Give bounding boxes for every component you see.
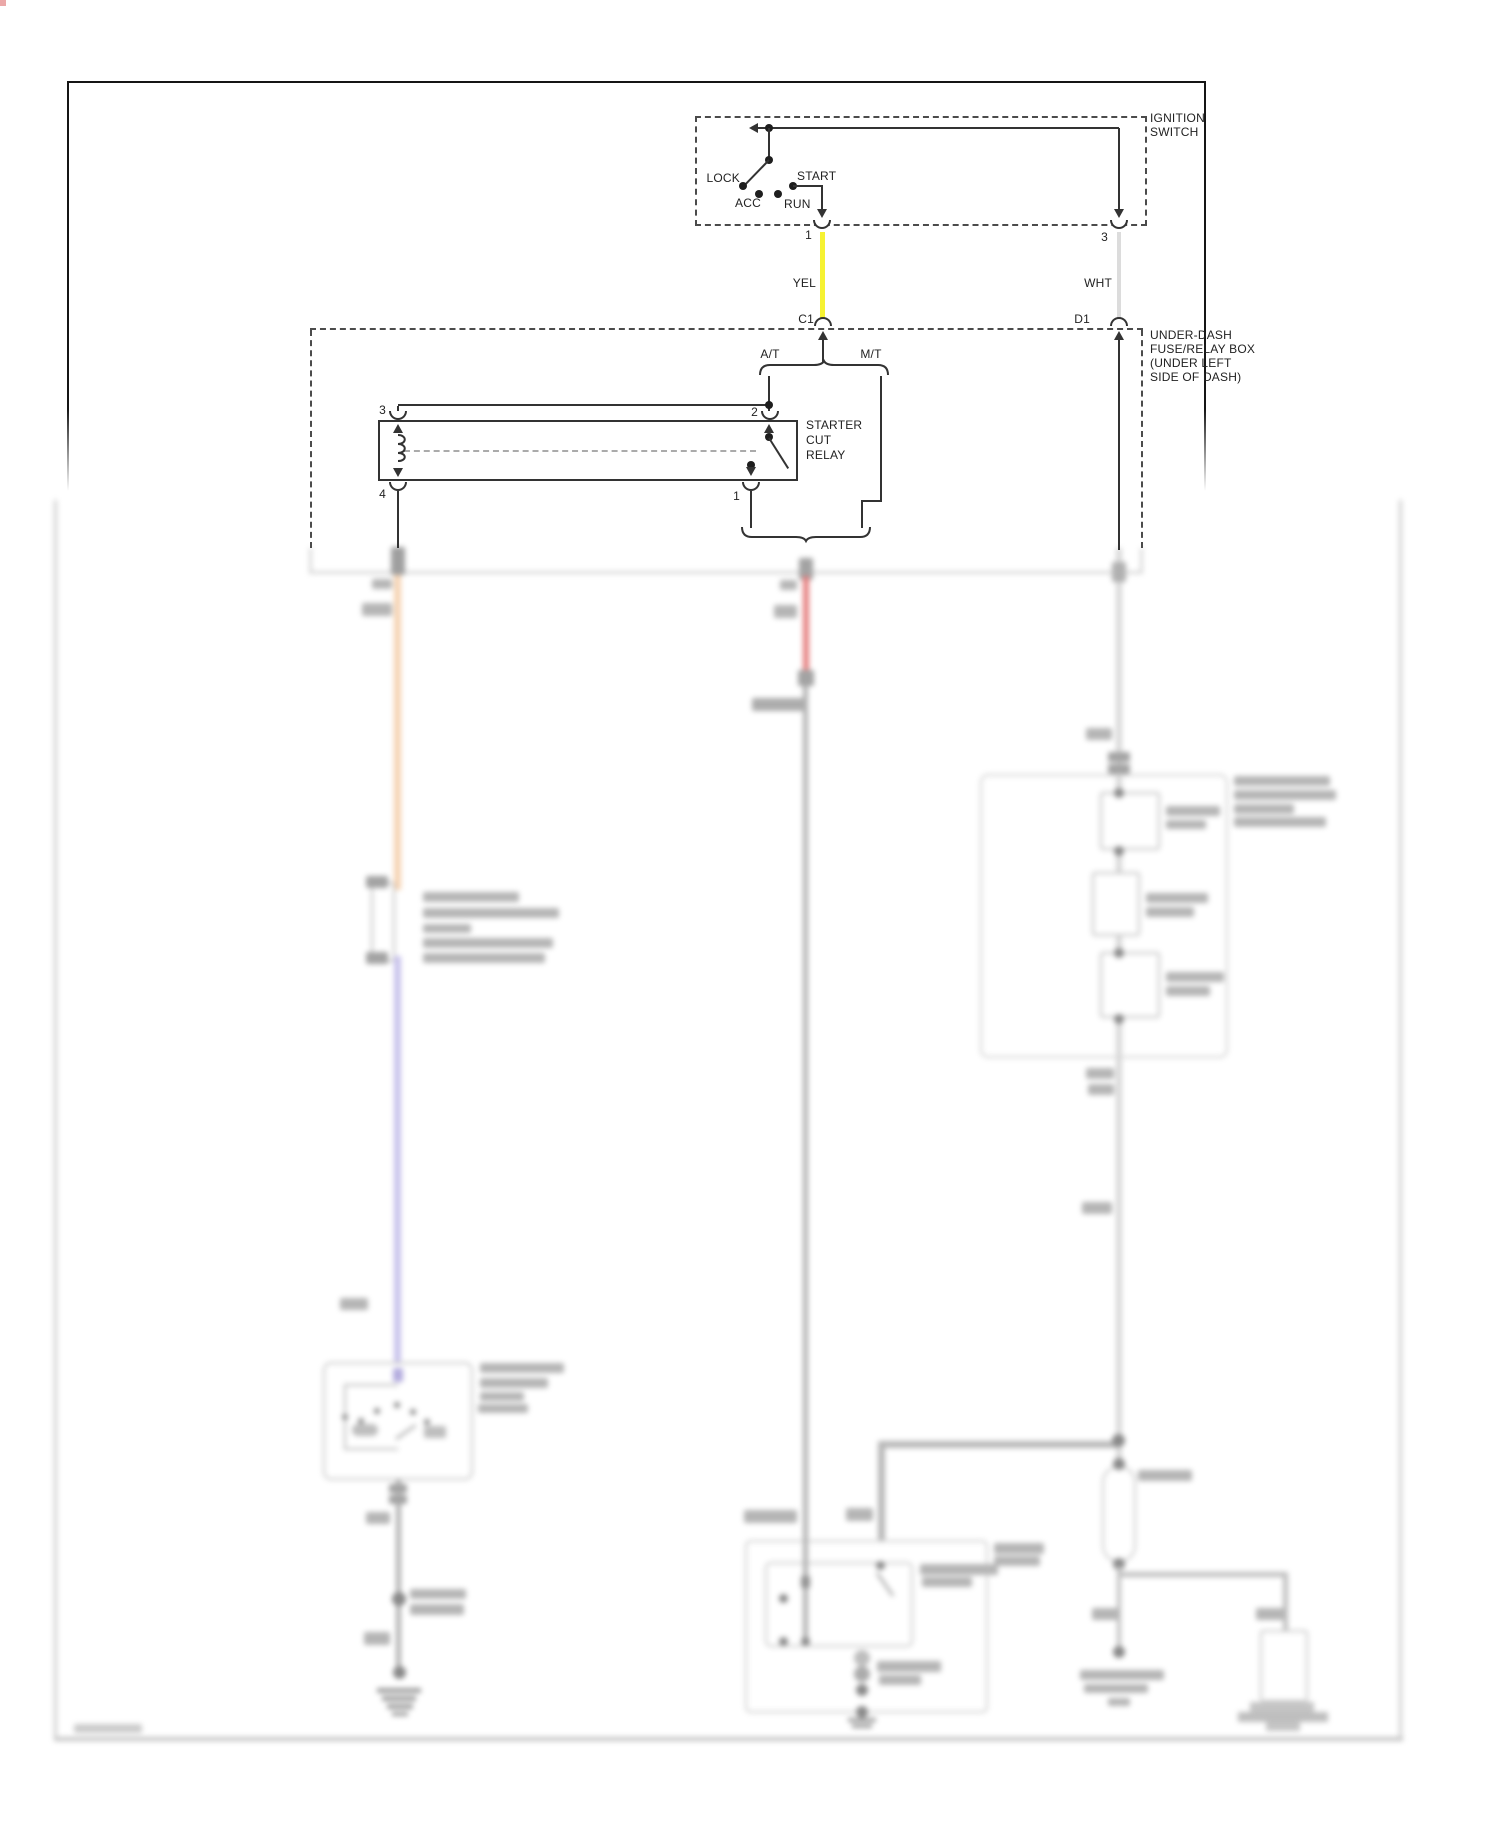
blurred-frame-left xyxy=(54,500,57,1740)
contact-dot xyxy=(856,1706,868,1718)
label-smudge xyxy=(1086,728,1112,740)
arrow-up-icon xyxy=(818,331,828,340)
label-smudge xyxy=(1234,817,1326,827)
position-start-label: START xyxy=(797,169,836,183)
corner-artifact xyxy=(0,0,6,6)
fuse-element xyxy=(1100,952,1160,1018)
wiring-diagram-page: IGNITION SWITCH LOCK ACC RUN START 1 3 Y… xyxy=(0,0,1500,1828)
relay-pin3-number: 3 xyxy=(362,403,386,417)
ground-symbol xyxy=(848,1718,876,1722)
pin1-output-wire xyxy=(750,491,752,528)
pin-battery-number: 3 xyxy=(1084,230,1108,244)
motor-circle xyxy=(854,1666,870,1682)
diagram-id-smudge xyxy=(74,1724,142,1733)
connector-smudge xyxy=(1108,752,1130,762)
d1-entry-line xyxy=(1118,340,1120,550)
run-contact-dot xyxy=(774,190,782,198)
red-wire xyxy=(803,576,809,674)
arrow-down-icon xyxy=(746,467,756,476)
relay-link-dashed-line xyxy=(404,450,756,452)
pin-start-number: 1 xyxy=(788,228,812,242)
start-branch-line xyxy=(793,185,823,187)
label-smudge xyxy=(423,938,553,948)
battery-box xyxy=(1260,1630,1308,1702)
label-smudge xyxy=(774,605,797,618)
label-smudge xyxy=(1166,806,1220,816)
battery-cable-horizontal xyxy=(878,1441,1121,1448)
switch-contact-dot xyxy=(394,1402,400,1408)
ignition-switch-label-line1: IGNITION xyxy=(1150,111,1205,125)
ground-symbol xyxy=(382,1696,416,1701)
merge-brace xyxy=(741,527,871,542)
label-smudge xyxy=(1166,972,1224,982)
arrow-up-icon xyxy=(764,424,774,433)
junction-dot xyxy=(1113,1646,1125,1658)
label-smudge xyxy=(1080,1670,1164,1680)
label-smudge xyxy=(362,603,392,616)
label-smudge xyxy=(364,1632,390,1645)
yel-wire-label: YEL xyxy=(770,276,816,290)
ground-symbol xyxy=(387,1704,413,1709)
relay-label-line2: CUT xyxy=(806,433,831,447)
position-acc-label: ACC xyxy=(735,196,761,210)
battery-base xyxy=(1250,1702,1314,1712)
fuse-element xyxy=(1092,872,1140,936)
label-smudge xyxy=(1146,907,1194,917)
switch-contact-dot xyxy=(410,1409,416,1415)
white-wire-blurred xyxy=(1116,548,1122,1570)
contact-dot xyxy=(876,1561,885,1570)
connector-smudge xyxy=(1108,764,1130,774)
label-smudge xyxy=(780,580,797,590)
arrow-smudge xyxy=(393,1368,403,1382)
ground-symbol xyxy=(377,1688,421,1693)
connector-smudge xyxy=(389,1484,407,1493)
fusible-link-pill xyxy=(1102,1466,1136,1562)
label-smudge xyxy=(1146,893,1208,903)
label-smudge xyxy=(922,1577,972,1587)
mt-branch-drop xyxy=(880,376,882,502)
contact-dot xyxy=(801,1637,810,1646)
label-smudge xyxy=(423,953,545,963)
label-smudge xyxy=(920,1564,998,1575)
junction-dot xyxy=(1113,1458,1125,1470)
battery-base xyxy=(1266,1722,1300,1731)
label-smudge xyxy=(1234,776,1330,786)
pin3-drop xyxy=(1118,128,1120,211)
connector-smudge xyxy=(391,547,405,575)
relay-label-line1: STARTER xyxy=(806,418,862,432)
arrow-down-icon xyxy=(1114,209,1124,218)
mt-branch-drop2 xyxy=(861,502,863,528)
label-smudge xyxy=(994,1543,1044,1554)
underdash-label-line3: (UNDER LEFT xyxy=(1150,356,1232,370)
contact-dot xyxy=(1114,1014,1124,1024)
label-smudge xyxy=(480,1378,548,1388)
label-smudge xyxy=(1084,1684,1148,1693)
battery-branch-vertical xyxy=(1283,1572,1288,1634)
connector-smudge xyxy=(389,1495,407,1504)
relay-pin2-number: 2 xyxy=(734,405,758,419)
inline-connector-box xyxy=(371,882,395,962)
fuse-element xyxy=(1100,792,1160,850)
label-smudge xyxy=(877,1661,941,1672)
c1-entry-line xyxy=(822,340,824,362)
label-smudge xyxy=(480,1363,564,1373)
label-smudge xyxy=(1256,1608,1284,1620)
wht-wire-label: WHT xyxy=(1066,276,1112,290)
label-smudge xyxy=(340,1298,368,1310)
ignition-switch-box xyxy=(695,116,1147,226)
battery-branch-horizontal xyxy=(1118,1572,1288,1577)
ignition-switch-label-line2: SWITCH xyxy=(1150,125,1199,139)
mt-branch-jog xyxy=(861,500,882,502)
label-smudge xyxy=(1108,1698,1130,1706)
underdash-box-top xyxy=(310,328,1143,330)
motor-circle xyxy=(854,1650,870,1666)
connector-d1-label: D1 xyxy=(1044,312,1090,326)
label-smudge xyxy=(1166,820,1206,829)
relay-label-line3: RELAY xyxy=(806,448,845,462)
arrow-up-icon xyxy=(1114,331,1124,340)
switch-contact-dot xyxy=(374,1408,380,1414)
label-smudge xyxy=(1138,1470,1192,1481)
splice-smudge xyxy=(752,698,806,711)
underdash-bottom-edge-blur xyxy=(310,571,1143,574)
relay-feed-line xyxy=(398,404,770,406)
ground-symbol xyxy=(852,1724,872,1728)
arrow-smudge xyxy=(801,1576,810,1588)
label-smudge xyxy=(1092,1608,1118,1620)
switch-inner-line xyxy=(344,1448,398,1450)
relay-pin1-number: 1 xyxy=(716,489,740,503)
relay-coil xyxy=(387,435,409,461)
label-smudge xyxy=(994,1556,1040,1566)
switch-smudge xyxy=(352,1424,378,1436)
frame-left xyxy=(67,81,69,491)
lock-contact-dot xyxy=(739,182,747,190)
arrow-down-icon xyxy=(817,209,827,218)
yel-wire xyxy=(820,232,825,318)
ground-symbol xyxy=(392,1712,408,1716)
blurred-diagram-section xyxy=(0,0,1500,1828)
label-smudge xyxy=(480,1392,524,1401)
label-smudge xyxy=(1234,790,1336,800)
junction-dot xyxy=(392,1592,406,1606)
contact-dot xyxy=(779,1594,788,1603)
relay-pin4-number: 4 xyxy=(362,487,386,501)
label-smudge xyxy=(1082,1202,1112,1214)
underdash-label-line1: UNDER-DASH xyxy=(1150,328,1232,342)
position-run-label: RUN xyxy=(784,197,811,211)
label-smudge xyxy=(410,1589,466,1599)
underdash-box-left xyxy=(310,330,312,548)
blurred-frame-right xyxy=(1399,500,1402,1740)
gray-wire xyxy=(396,1480,401,1670)
label-smudge xyxy=(744,1510,797,1523)
contact-dot xyxy=(856,1684,868,1696)
arrow-left-icon xyxy=(749,123,758,133)
position-lock-label: LOCK xyxy=(700,171,740,185)
orange-wire xyxy=(394,575,401,890)
label-smudge xyxy=(478,1404,528,1413)
switch-contact-dot xyxy=(342,1414,348,1420)
label-smudge xyxy=(879,1675,921,1685)
connector-smudge xyxy=(1112,562,1126,582)
junction-dot xyxy=(765,401,773,409)
label-smudge xyxy=(423,908,559,918)
label-smudge xyxy=(1086,1068,1114,1079)
underdash-label-line2: FUSE/RELAY BOX xyxy=(1150,342,1255,356)
feed-line xyxy=(758,127,1119,129)
lavender-wire xyxy=(394,956,401,1364)
trans-manual-label: M/T xyxy=(847,347,895,361)
label-smudge xyxy=(846,1508,873,1521)
label-smudge xyxy=(366,1512,390,1524)
trans-auto-label: A/T xyxy=(746,347,794,361)
arrow-down-icon xyxy=(393,468,403,477)
contact-dot xyxy=(1114,788,1124,798)
junction-dot xyxy=(393,1666,406,1679)
start-branch-drop xyxy=(821,185,823,211)
switch-smudge xyxy=(424,1426,446,1438)
blurred-frame-bottom xyxy=(54,1737,1403,1741)
contact-dot xyxy=(779,1637,788,1646)
frame-top xyxy=(67,81,1206,83)
switch-inner-line xyxy=(344,1384,398,1386)
contact-dot xyxy=(1114,948,1124,958)
connector-c1-label: C1 xyxy=(768,312,814,326)
label-smudge xyxy=(1166,986,1210,996)
frame-right xyxy=(1204,81,1206,491)
label-smudge xyxy=(410,1604,464,1615)
arrow-up-icon xyxy=(393,424,403,433)
label-smudge xyxy=(423,892,519,902)
label-smudge xyxy=(423,924,471,933)
underdash-box-right xyxy=(1141,330,1143,548)
split-brace xyxy=(759,360,889,376)
switch-contact-dot xyxy=(424,1419,430,1425)
solenoid-box xyxy=(765,1562,913,1647)
connector-smudge xyxy=(366,952,388,964)
connector-smudge xyxy=(798,670,814,686)
label-smudge xyxy=(1088,1084,1114,1095)
wht-wire xyxy=(1117,232,1121,318)
gray-wire xyxy=(803,686,808,1543)
battery-base xyxy=(1238,1712,1328,1722)
label-smudge xyxy=(372,579,392,589)
label-smudge xyxy=(1234,804,1294,814)
contact-dot xyxy=(1114,846,1124,856)
junction-dot xyxy=(1112,1434,1125,1447)
gray-wire xyxy=(803,1540,808,1640)
underdash-label-line4: SIDE OF DASH) xyxy=(1150,370,1241,384)
connector-smudge xyxy=(366,876,388,888)
pin4-output-wire xyxy=(397,491,399,548)
